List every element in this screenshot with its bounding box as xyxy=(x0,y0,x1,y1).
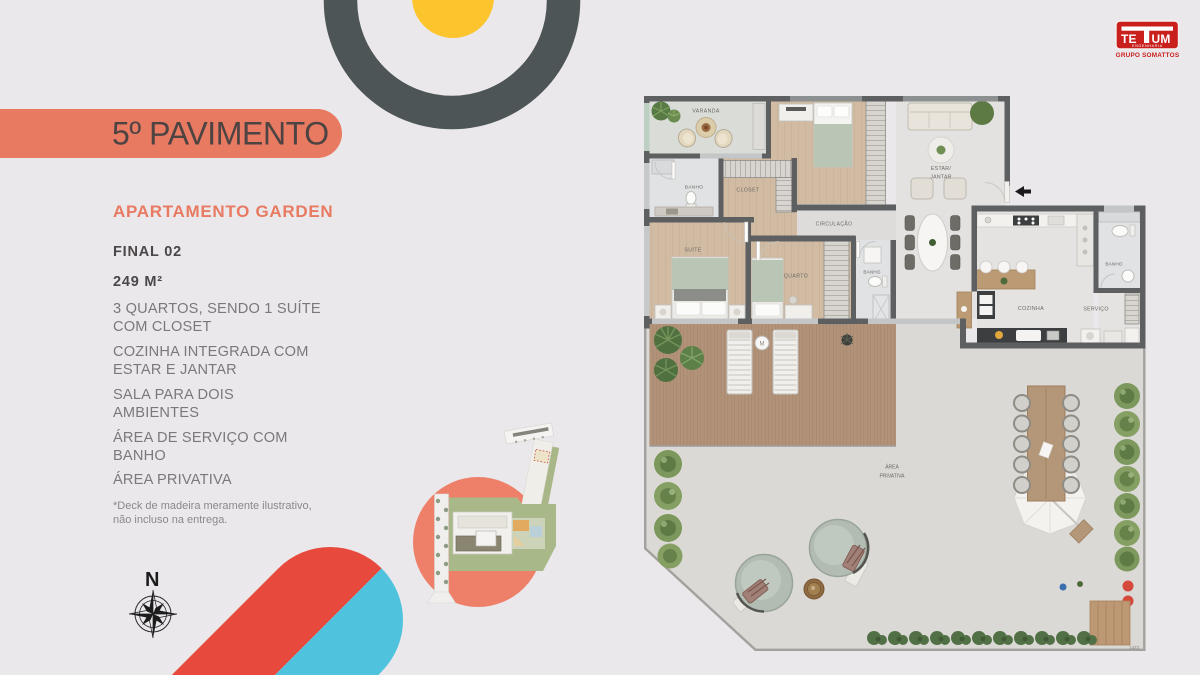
svg-text:não incluso na entrega.: não incluso na entrega. xyxy=(113,514,227,526)
svg-text:ÁREA DE SERVIÇO COM: ÁREA DE SERVIÇO COM xyxy=(113,429,288,446)
svg-text:SALA PARA DOIS: SALA PARA DOIS xyxy=(113,387,234,403)
svg-text:*Deck de madeira meramente ilu: *Deck de madeira meramente ilustrativo, xyxy=(113,500,312,512)
svg-text:QUARTO: QUARTO xyxy=(784,274,808,280)
svg-text:ÁREA: ÁREA xyxy=(885,464,899,471)
svg-text:BANHO: BANHO xyxy=(113,448,166,464)
svg-text:BANHO: BANHO xyxy=(863,270,881,275)
svg-text:ESTAR E JANTAR: ESTAR E JANTAR xyxy=(113,362,237,378)
svg-text:COM CLOSET: COM CLOSET xyxy=(113,319,212,335)
svg-text:SUITE: SUITE xyxy=(684,248,701,254)
svg-text:ÁREA PRIVATIVA: ÁREA PRIVATIVA xyxy=(113,471,232,488)
svg-text:BANHO: BANHO xyxy=(685,185,704,191)
svg-text:GRUPO SOMATTOS: GRUPO SOMATTOS xyxy=(1116,52,1180,59)
svg-text:CIRCULAÇÃO: CIRCULAÇÃO xyxy=(816,221,853,228)
svg-text:VARANDA: VARANDA xyxy=(692,109,720,115)
svg-text:N: N xyxy=(145,569,159,591)
svg-text:M: M xyxy=(760,342,765,348)
svg-text:CLOSET: CLOSET xyxy=(736,188,760,194)
svg-text:APARTAMENTO GARDEN: APARTAMENTO GARDEN xyxy=(113,202,333,221)
svg-text:COZINHA: COZINHA xyxy=(1018,306,1044,312)
svg-text:5º PAVIMENTO: 5º PAVIMENTO xyxy=(112,116,329,152)
svg-text:FINAL 02: FINAL 02 xyxy=(113,244,182,260)
svg-text:3 QUARTOS, SENDO 1 SUÍTE: 3 QUARTOS, SENDO 1 SUÍTE xyxy=(113,300,321,317)
svg-text:BANHO: BANHO xyxy=(1105,262,1123,267)
svg-text:ENGENHARIA: ENGENHARIA xyxy=(1132,44,1163,48)
svg-text:AMBIENTES: AMBIENTES xyxy=(113,405,199,421)
svg-text:1423: 1423 xyxy=(1129,645,1140,650)
svg-text:ESTAR/: ESTAR/ xyxy=(931,166,951,172)
svg-text:SERVIÇO: SERVIÇO xyxy=(1083,307,1108,313)
svg-text:COZINHA INTEGRADA COM: COZINHA INTEGRADA COM xyxy=(113,344,309,360)
svg-text:PRIVATIVA: PRIVATIVA xyxy=(879,474,905,480)
svg-text:249 M²: 249 M² xyxy=(113,274,163,290)
svg-text:JANTAR: JANTAR xyxy=(930,175,952,181)
